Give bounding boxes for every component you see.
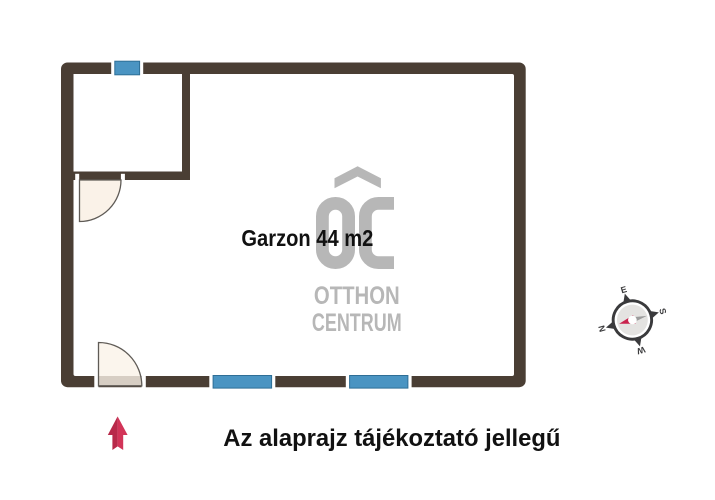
svg-text:OTTHON: OTTHON	[314, 281, 400, 310]
svg-text:CENTRUM: CENTRUM	[312, 308, 402, 337]
svg-text:Az alaprajz tájékoztató jelleg: Az alaprajz tájékoztató jellegű	[223, 425, 560, 452]
svg-text:Garzon 44 m2: Garzon 44 m2	[241, 225, 373, 252]
